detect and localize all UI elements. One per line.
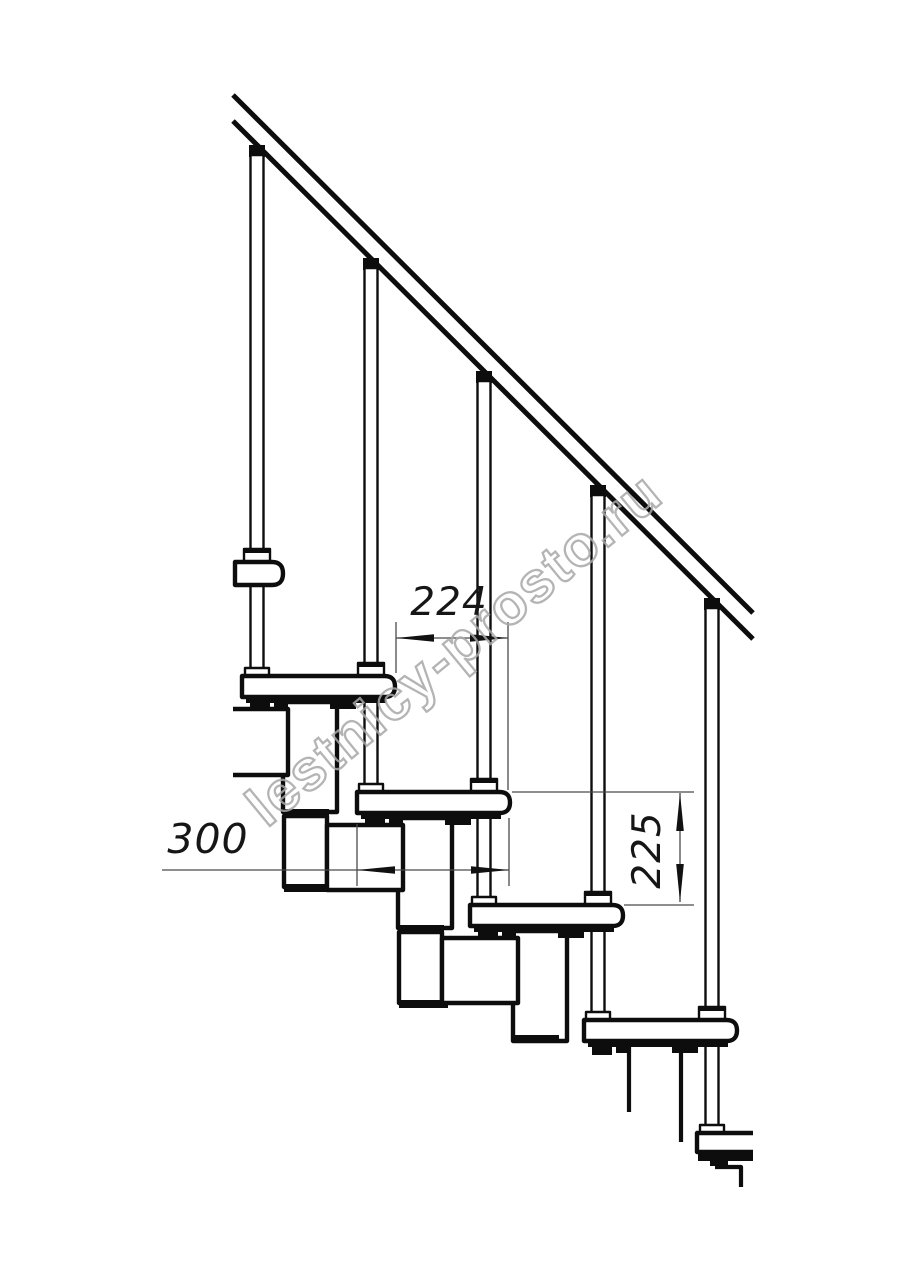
bracket-tab	[389, 819, 403, 825]
tread-plate-cut	[697, 1133, 753, 1152]
handrail	[233, 95, 753, 639]
bracket-tab	[710, 1158, 728, 1166]
module-5-cut-line	[715, 1167, 741, 1187]
tread-upper-partial	[235, 562, 283, 585]
bracket-tab	[365, 819, 385, 827]
spine-module-4-cut	[629, 1046, 681, 1142]
tread-plate	[357, 792, 510, 813]
dimension-value-225: 225	[625, 811, 670, 888]
dimension-value-300: 300	[167, 815, 248, 863]
watermark-text: lestnicy-prosto.ru	[234, 460, 674, 839]
tread-plate	[470, 905, 623, 926]
baluster-collar-nut	[699, 1007, 725, 1011]
module-upper-column	[398, 818, 452, 928]
bracket-tab	[616, 1047, 630, 1053]
bracket-tab	[250, 703, 270, 711]
baluster-collar-nut	[585, 892, 611, 896]
tread-bracket	[474, 925, 614, 932]
bracket-tab	[274, 703, 288, 709]
tread-5-partial	[697, 1133, 753, 1187]
baluster-collar-nut	[244, 549, 270, 553]
tread-plate	[235, 562, 283, 585]
module-upper-column	[513, 931, 567, 1041]
staircase-elevation-drawing: 224 300 225 lestnicy-prosto.ru	[0, 0, 914, 1280]
handrail-top-line	[233, 95, 753, 613]
bracket-tab	[502, 932, 516, 938]
tread-bracket	[588, 1040, 728, 1047]
bracket-tab	[592, 1047, 612, 1055]
baluster-1	[244, 145, 270, 676]
tread-plate	[584, 1020, 737, 1041]
bracket-tab	[445, 819, 471, 825]
connector-square-3	[442, 938, 518, 1003]
bracket-tab	[558, 932, 584, 938]
module-lower-column	[284, 816, 327, 887]
bracket-tab	[478, 932, 498, 940]
tread-bracket	[361, 812, 501, 819]
baluster-post	[251, 155, 264, 676]
module-collar-band	[515, 1035, 559, 1042]
handrail-bottom-line	[233, 121, 753, 639]
spine-module-3	[513, 931, 567, 1042]
dim-arrow-up	[676, 793, 684, 831]
dim-arrow-down	[676, 864, 684, 902]
baluster-collar-nut	[471, 779, 497, 783]
bracket-tab	[672, 1047, 698, 1053]
module-lower-column	[399, 932, 442, 1003]
staircase-technical-drawing-page: 224 300 225 lestnicy-prosto.ru	[0, 0, 914, 1280]
baluster-post	[706, 608, 719, 1133]
connector-square-2	[327, 825, 403, 890]
baluster-collar-nut	[358, 663, 384, 667]
baluster-5	[699, 598, 725, 1133]
